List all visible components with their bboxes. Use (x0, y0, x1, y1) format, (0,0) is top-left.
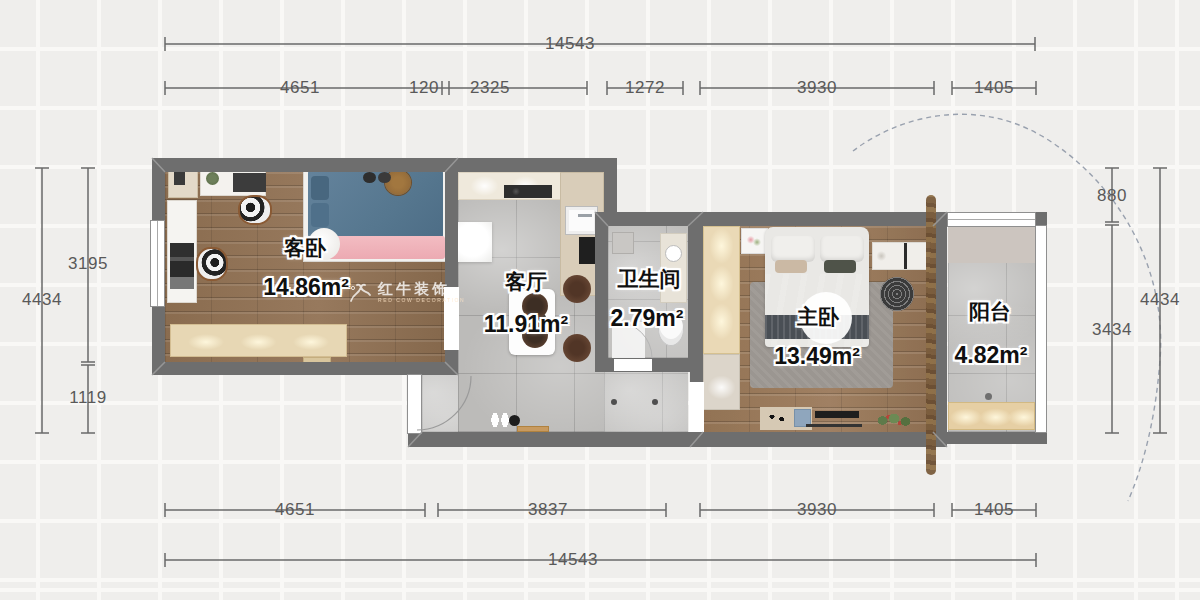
master-bed-cushion-tan (775, 260, 807, 273)
kitchen-faucet (578, 214, 592, 217)
room-area-bathroom: 2.79m² (611, 305, 684, 332)
dim-top-seg-6: 1405 (974, 78, 1014, 98)
wall-master-left-stub (690, 372, 703, 382)
room-area-balcony: 4.82m² (955, 342, 1028, 369)
wall-guest-right-stub (445, 350, 458, 364)
dim-left-seg-1: 3195 (68, 254, 108, 274)
dim-bottom-seg-3: 3930 (797, 500, 837, 520)
entry-slippers (490, 413, 510, 427)
dim-right-seg-1: 880 (1097, 186, 1127, 206)
master-bed-pillow-2 (820, 236, 864, 262)
tv-mat-decor (766, 412, 790, 424)
floorplan-canvas: 14543 4651 120 2325 1272 3930 1405 4651 … (0, 0, 1200, 600)
master-dresser (872, 242, 930, 270)
window-balcony-right[interactable] (1035, 225, 1047, 433)
tv-screen (815, 411, 859, 418)
dim-top-seg-4: 1272 (625, 78, 665, 98)
window-balcony-top[interactable] (947, 212, 1036, 227)
guest-bed-cushion-dark2 (378, 172, 391, 183)
dining-chair-4 (563, 334, 591, 362)
master-wardrobe (703, 226, 740, 354)
dim-bottom-seg-1: 4651 (275, 500, 315, 520)
watermark-tagline: RED COW DECORATION (378, 298, 465, 303)
hanging-vine-plant (926, 195, 936, 475)
dim-bottom-seg-4: 1405 (974, 500, 1014, 520)
guest-chair-2 (196, 247, 228, 281)
wall-bathroom-left (595, 224, 608, 372)
guest-chair-1 (238, 195, 272, 225)
guest-bed-blanket-pink (327, 236, 445, 259)
kitchen-sink (565, 206, 598, 235)
master-nightstand (741, 228, 768, 254)
room-label-balcony: 阳台 (969, 298, 1011, 326)
room-label-living-room: 客厅 (505, 268, 547, 296)
wall-guest-left-upper (152, 170, 165, 220)
dim-top-seg-5: 3930 (797, 78, 837, 98)
balcony-floor-drain (985, 393, 992, 400)
door-entry[interactable] (407, 374, 422, 434)
window-guest-left[interactable] (150, 220, 165, 307)
hallway-cabinet-handle-2 (652, 399, 658, 405)
dim-top-seg-1: 4651 (280, 78, 320, 98)
dim-top-seg-3: 2325 (470, 78, 510, 98)
wall-guest-right-upper (445, 170, 458, 287)
master-bed-cushion-dark (824, 260, 856, 273)
master-round-rug (880, 277, 914, 311)
shower-item (612, 232, 634, 254)
room-living-entry[interactable] (422, 375, 458, 432)
room-area-guest-bedroom: 14.86m² (263, 274, 349, 301)
fridge (452, 222, 492, 262)
room-area-master-bedroom: 13.49m² (774, 343, 860, 370)
guest-bed-pillow-1 (311, 176, 329, 200)
hallway-cabinet-handle-1 (611, 399, 617, 405)
brand-bull-icon (349, 280, 373, 304)
master-plant (875, 411, 913, 430)
balcony-cabinet (948, 402, 1035, 430)
guest-desk-plant (206, 172, 219, 185)
master-wardrobe-lower (703, 354, 740, 410)
guest-pc-setup (170, 243, 194, 289)
kitchen-cooktop (504, 185, 552, 198)
dining-chair-2 (563, 275, 591, 303)
room-label-bathroom: 卫生间 (618, 265, 681, 293)
watermark: 红牛装饰 RED COW DECORATION (349, 280, 465, 304)
master-bed-pillow-1 (771, 236, 815, 262)
room-area-living-room: 11.91m² (484, 311, 568, 338)
wall-balcony-bottom (947, 432, 1047, 444)
dim-bottom-total: 14543 (548, 550, 598, 570)
dim-left-seg-2: 1119 (69, 388, 106, 408)
tv-soundbar (806, 424, 862, 427)
dim-top-total: 14543 (545, 34, 595, 54)
wall-bottom-main (408, 432, 947, 447)
guest-desk-monitor (233, 173, 266, 192)
watermark-brand: 红牛装饰 (378, 281, 465, 296)
guest-bed-cushion-dark (363, 172, 376, 183)
guest-bed-pillow-2 (311, 203, 329, 227)
room-label-master-bedroom: 主卧 (797, 303, 839, 331)
door-master-bedroom[interactable] (689, 382, 704, 432)
guest-wardrobe (170, 324, 347, 357)
balcony-top-strip (948, 227, 1035, 263)
door-bathroom[interactable] (614, 359, 652, 371)
room-label-guest-bedroom: 客卧 (284, 234, 326, 262)
dim-left-outer: 4434 (22, 290, 62, 310)
dim-bottom-seg-2: 3837 (528, 500, 568, 520)
bathroom-sink (665, 245, 682, 262)
entry-kettle (509, 415, 520, 426)
wall-top-left-band (152, 158, 617, 172)
wall-top-right-band (595, 212, 947, 226)
corner-cabinet-picture (174, 172, 185, 185)
dim-top-seg-2: 120 (409, 78, 439, 98)
wall-bathroom-right (688, 224, 703, 372)
dim-right-seg-2: 3434 (1092, 320, 1132, 340)
dim-right-outer: 4434 (1140, 290, 1180, 310)
